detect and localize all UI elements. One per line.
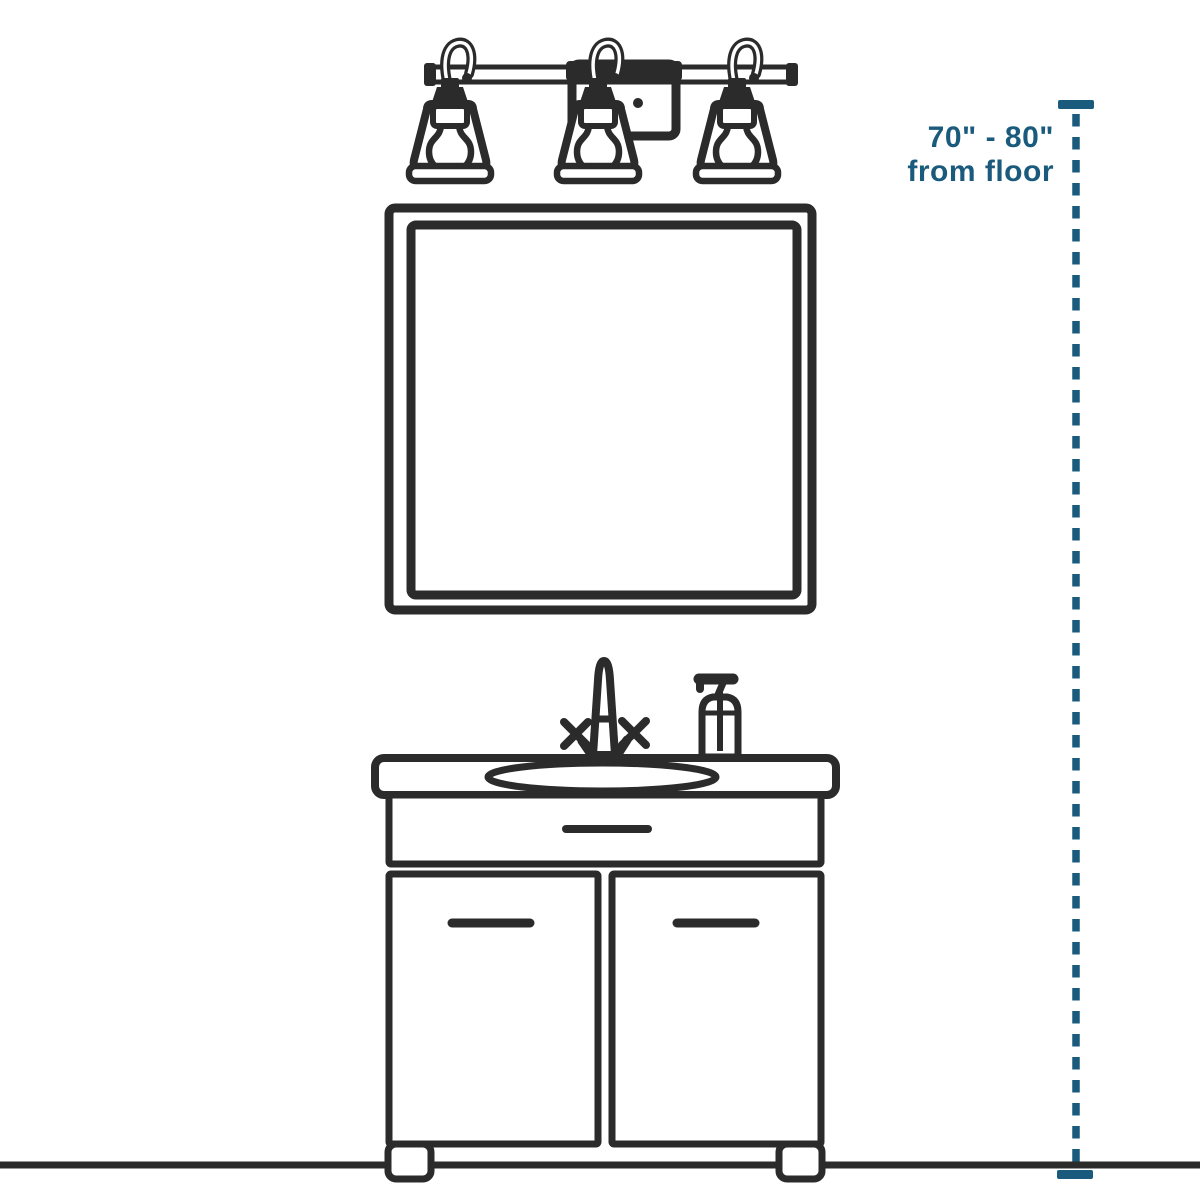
soap-dispenser	[699, 679, 738, 757]
left-foot	[388, 1144, 431, 1179]
mirror	[389, 208, 812, 610]
height-reference-text: from floor	[907, 155, 1054, 189]
measure-bottom-cap	[1057, 1170, 1093, 1179]
right-door	[612, 874, 821, 1144]
vanity-lamp-right	[696, 43, 778, 181]
height-range-text: 70" - 80"	[907, 121, 1054, 155]
bar-right-end-cap	[786, 63, 798, 86]
mirror-inner-frame	[411, 225, 797, 595]
right-foot	[779, 1144, 822, 1179]
vanity-cabinet	[375, 661, 836, 1179]
height-measurement	[1057, 100, 1094, 1179]
diagram-page: { "page": { "kind": "installation-height…	[0, 0, 1200, 1200]
measure-top-cap	[1058, 100, 1094, 109]
left-door	[389, 874, 598, 1144]
vanity-light-fixture	[409, 43, 798, 181]
vanity-lamp-left	[409, 43, 491, 181]
backplate-screw	[633, 98, 643, 108]
height-annotation: 70" - 80" from floor	[907, 121, 1054, 189]
sink-basin	[488, 763, 716, 791]
faucet-spout	[593, 661, 615, 755]
faucet	[564, 661, 646, 757]
bar-left-end-cap	[424, 63, 436, 86]
